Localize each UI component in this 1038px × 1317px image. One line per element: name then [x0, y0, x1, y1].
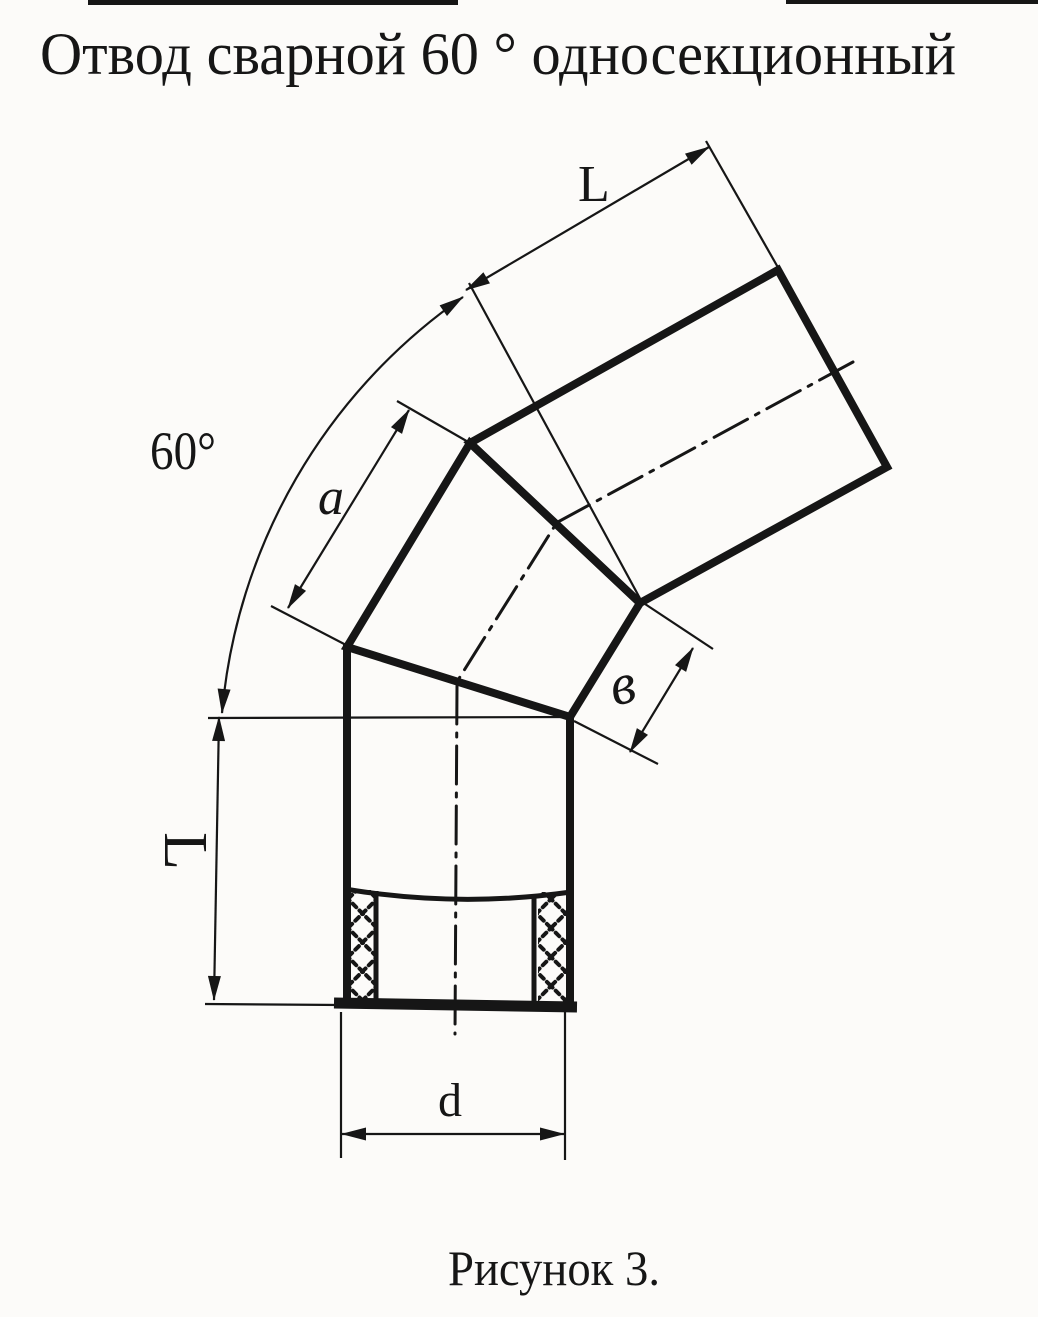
upper-pipe-outline — [470, 270, 887, 603]
dim-label-upper-L: L — [578, 156, 610, 213]
extension-line — [271, 606, 348, 646]
dim-label-v: в — [603, 650, 641, 719]
socket-wall-hatch-left — [349, 890, 374, 1002]
scan-edge-artifact — [88, 0, 458, 5]
extension-line — [642, 602, 713, 649]
middle-section-center-line — [458, 524, 556, 680]
dim-label-angle: 60° — [150, 421, 216, 481]
dimension-line-v — [630, 648, 693, 752]
scanned-drawing-page: Отвод сварной 60 ° односекционный — [0, 0, 1038, 1317]
dim-label-a: a — [318, 469, 344, 526]
elbow-technical-drawing: Отвод сварной 60 ° односекционный — [0, 0, 1038, 1317]
drawing-title: Отвод сварной 60 ° односекционный — [40, 21, 956, 87]
extension-line — [208, 717, 572, 718]
extension-line — [205, 1004, 341, 1005]
extension-line — [397, 401, 470, 443]
dim-label-d: d — [438, 1074, 462, 1127]
pipe-bottom-rim — [334, 1003, 577, 1007]
lower-pipe-center-line — [455, 686, 457, 1034]
extension-line — [469, 283, 643, 604]
figure-caption: Рисунок 3. — [448, 1240, 660, 1296]
middle-section-outline — [347, 443, 640, 717]
socket-wall-hatch-right — [538, 892, 567, 1002]
extension-line — [706, 141, 780, 271]
scan-edge-artifact — [786, 0, 1038, 4]
socket-end-curve — [345, 889, 571, 899]
dim-label-lower-L: L — [151, 832, 219, 870]
upper-pipe-center-line — [556, 362, 853, 523]
